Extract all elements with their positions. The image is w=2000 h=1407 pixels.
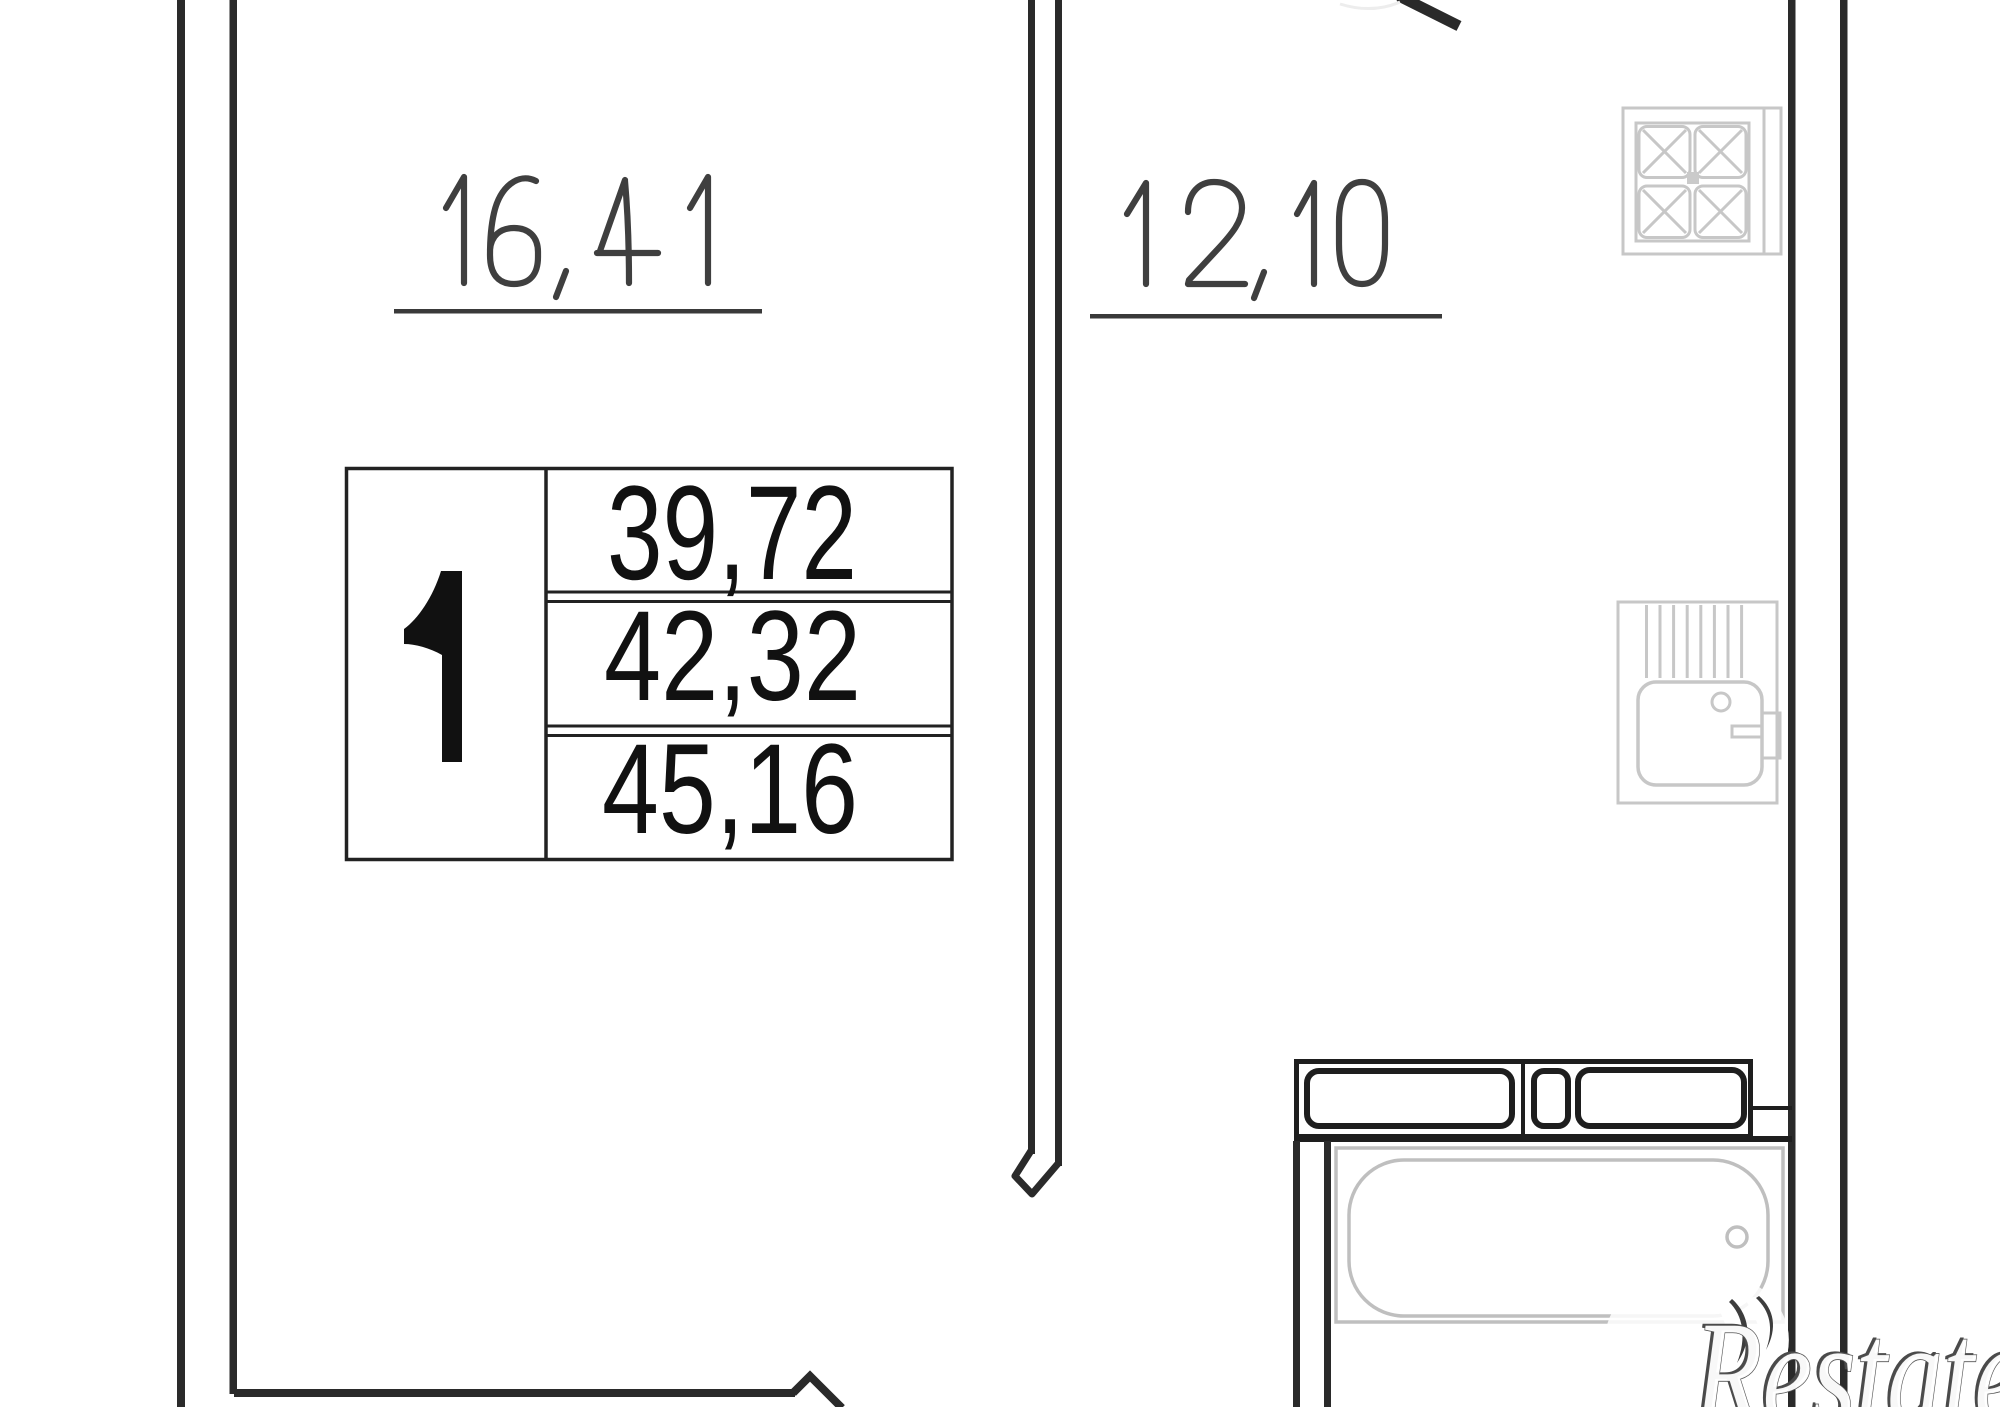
svg-text:42,32: 42,32 <box>604 585 861 728</box>
svg-text:Restate: Restate <box>1693 1291 2000 1407</box>
svg-text:45,16: 45,16 <box>602 718 858 861</box>
